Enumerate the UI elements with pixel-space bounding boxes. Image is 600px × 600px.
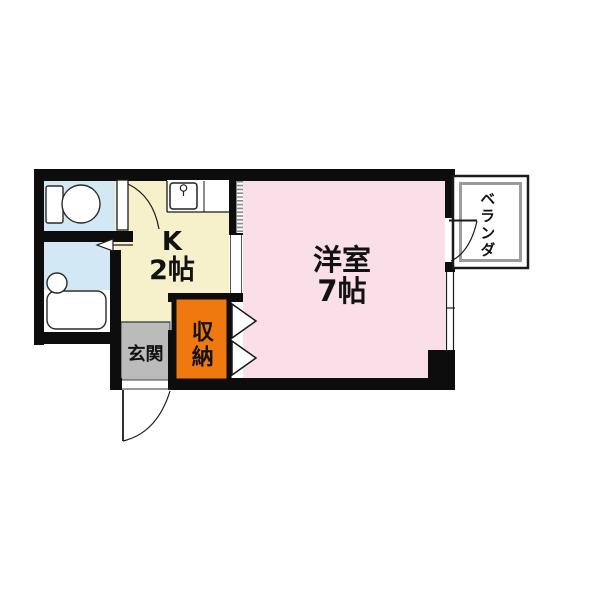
main-room-name: 洋室 bbox=[276, 245, 408, 276]
entrance-label: 玄関 bbox=[118, 345, 173, 364]
wall-bath-bottom bbox=[34, 332, 121, 344]
kitchen-room-doorway bbox=[229, 235, 243, 293]
closet-label: 収納 bbox=[188, 306, 212, 384]
wall-top bbox=[34, 169, 455, 181]
wall-bath-right bbox=[110, 250, 121, 332]
kitchen-sink-icon bbox=[167, 180, 229, 212]
wall-left bbox=[34, 169, 44, 345]
kitchen-label: K 2帖 bbox=[123, 228, 221, 285]
main-room-area: 7帖 bbox=[276, 276, 408, 307]
kitchen-area: 2帖 bbox=[123, 256, 221, 285]
entrance-door bbox=[122, 389, 170, 441]
wall-toilet-bath-divider bbox=[34, 231, 133, 242]
balcony-label: ベランダ bbox=[479, 184, 495, 266]
toilet-icon bbox=[46, 185, 100, 223]
floor-plan: K 2帖 洋室 7帖 玄関 収納 ベランダ bbox=[0, 0, 600, 600]
kitchen-name: K bbox=[123, 228, 221, 256]
window-right bbox=[445, 272, 455, 350]
wall-bottom-left-stub bbox=[110, 378, 122, 390]
main-room-label: 洋室 7帖 bbox=[276, 245, 408, 308]
wall-corner-block bbox=[428, 350, 455, 382]
wall-hatch-strip bbox=[237, 181, 244, 233]
